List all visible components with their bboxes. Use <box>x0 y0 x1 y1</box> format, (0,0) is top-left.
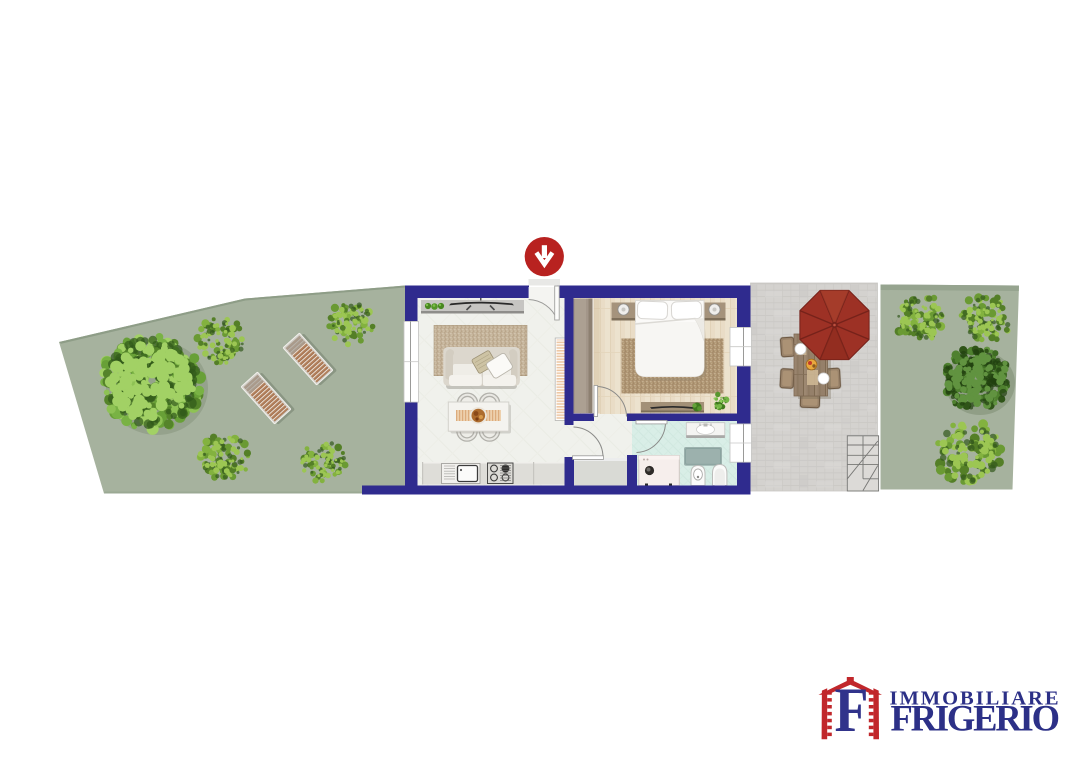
svg-text:F: F <box>835 675 869 745</box>
svg-text:FRIGERIO: FRIGERIO <box>891 698 1061 739</box>
